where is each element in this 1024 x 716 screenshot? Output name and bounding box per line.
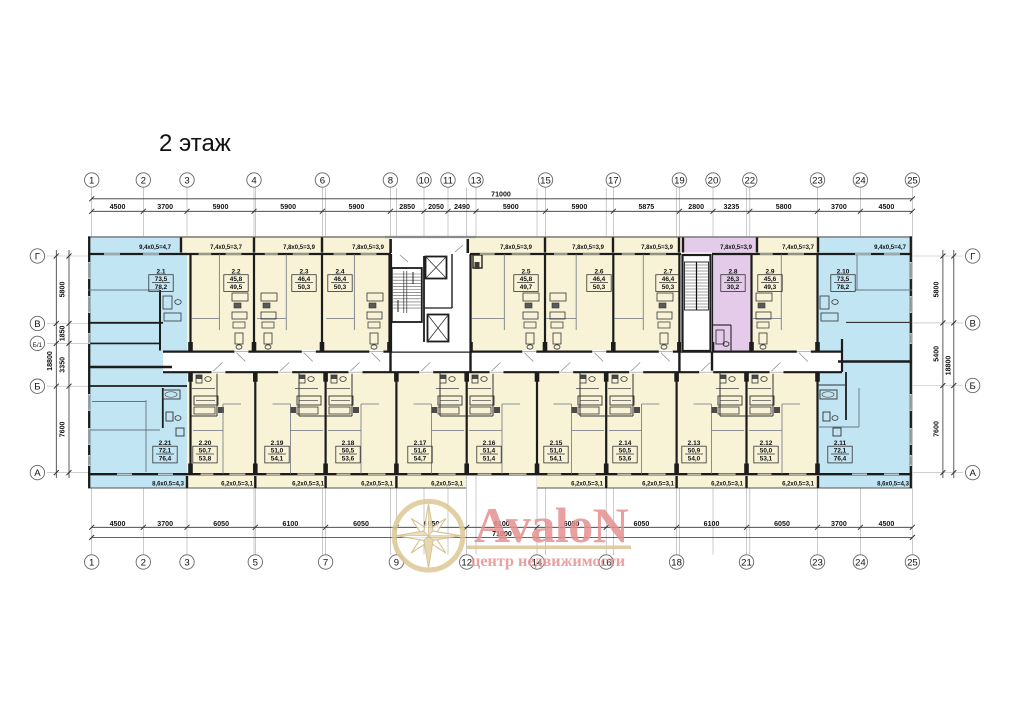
svg-text:4500: 4500 bbox=[110, 203, 126, 211]
svg-text:73,5: 73,5 bbox=[155, 276, 168, 283]
svg-text:2: 2 bbox=[141, 175, 146, 186]
svg-text:71000: 71000 bbox=[491, 191, 511, 199]
svg-text:7,4х0,5=3,7: 7,4х0,5=3,7 bbox=[210, 245, 243, 251]
svg-text:50,3: 50,3 bbox=[662, 284, 675, 291]
svg-text:54,1: 54,1 bbox=[271, 455, 284, 462]
svg-text:21: 21 bbox=[741, 557, 752, 568]
svg-text:17: 17 bbox=[608, 175, 619, 186]
svg-text:53,6: 53,6 bbox=[619, 455, 632, 462]
svg-text:2850: 2850 bbox=[399, 203, 415, 211]
svg-text:50,7: 50,7 bbox=[199, 448, 212, 455]
svg-text:22: 22 bbox=[744, 175, 755, 186]
svg-text:5875: 5875 bbox=[638, 203, 654, 211]
svg-text:4500: 4500 bbox=[110, 520, 126, 528]
svg-text:72,1: 72,1 bbox=[834, 448, 847, 455]
svg-text:2050: 2050 bbox=[428, 203, 444, 211]
svg-text:9: 9 bbox=[394, 557, 399, 568]
svg-text:6,2х0,5=3,1: 6,2х0,5=3,1 bbox=[431, 482, 464, 488]
svg-text:50,3: 50,3 bbox=[593, 284, 606, 291]
svg-text:5800: 5800 bbox=[776, 203, 792, 211]
svg-text:20: 20 bbox=[708, 175, 719, 186]
svg-text:50,3: 50,3 bbox=[298, 284, 311, 291]
svg-text:76,4: 76,4 bbox=[834, 455, 847, 462]
svg-text:46,4: 46,4 bbox=[334, 276, 347, 283]
svg-text:8,6х0,5=4,3: 8,6х0,5=4,3 bbox=[877, 482, 910, 488]
svg-text:49,7: 49,7 bbox=[520, 284, 533, 291]
svg-text:51,4: 51,4 bbox=[483, 455, 496, 462]
svg-text:4500: 4500 bbox=[879, 520, 895, 528]
svg-text:2: 2 bbox=[141, 557, 146, 568]
svg-text:7,4х0,5=3,7: 7,4х0,5=3,7 bbox=[782, 245, 815, 251]
svg-text:6100: 6100 bbox=[704, 520, 720, 528]
svg-text:3: 3 bbox=[184, 175, 189, 186]
svg-text:4: 4 bbox=[251, 175, 257, 186]
svg-text:5400: 5400 bbox=[933, 346, 941, 362]
svg-text:15: 15 bbox=[540, 175, 551, 186]
svg-text:Б: Б bbox=[34, 382, 40, 393]
svg-text:5: 5 bbox=[253, 557, 258, 568]
svg-text:7,8х0,5=3,9: 7,8х0,5=3,9 bbox=[500, 245, 533, 251]
svg-text:6050: 6050 bbox=[353, 520, 369, 528]
svg-text:8,6х0,5=4,3: 8,6х0,5=4,3 bbox=[152, 482, 185, 488]
svg-text:53,1: 53,1 bbox=[760, 455, 773, 462]
svg-text:7600: 7600 bbox=[933, 421, 941, 437]
svg-text:45,8: 45,8 bbox=[520, 276, 533, 283]
svg-text:54,0: 54,0 bbox=[688, 455, 701, 462]
svg-text:5900: 5900 bbox=[503, 203, 519, 211]
svg-text:8: 8 bbox=[388, 175, 393, 186]
svg-text:6,2х0,5=3,1: 6,2х0,5=3,1 bbox=[642, 482, 675, 488]
svg-text:Б/1: Б/1 bbox=[33, 342, 43, 349]
svg-text:3700: 3700 bbox=[157, 520, 173, 528]
svg-text:5800: 5800 bbox=[59, 282, 67, 298]
svg-text:23: 23 bbox=[812, 175, 823, 186]
svg-text:45,8: 45,8 bbox=[230, 276, 243, 283]
svg-text:В: В bbox=[34, 319, 40, 330]
svg-text:5800: 5800 bbox=[933, 282, 941, 298]
svg-text:6,2х0,5=3,1: 6,2х0,5=3,1 bbox=[571, 482, 604, 488]
svg-text:1: 1 bbox=[89, 175, 94, 186]
svg-text:А: А bbox=[969, 468, 976, 479]
svg-text:3350: 3350 bbox=[59, 357, 67, 373]
svg-text:Б: Б bbox=[970, 381, 976, 392]
svg-text:3700: 3700 bbox=[157, 203, 173, 211]
svg-text:6,2х0,5=3,1: 6,2х0,5=3,1 bbox=[221, 482, 254, 488]
svg-text:72,1: 72,1 bbox=[159, 448, 172, 455]
svg-text:центр недвижимости: центр недвижимости bbox=[471, 552, 625, 570]
svg-text:В: В bbox=[969, 318, 975, 329]
svg-text:25: 25 bbox=[907, 175, 918, 186]
svg-text:53,6: 53,6 bbox=[342, 455, 355, 462]
svg-text:24: 24 bbox=[855, 175, 866, 186]
svg-text:54,1: 54,1 bbox=[550, 455, 563, 462]
svg-text:46,4: 46,4 bbox=[593, 276, 606, 283]
svg-text:5900: 5900 bbox=[349, 203, 365, 211]
svg-text:49,3: 49,3 bbox=[764, 284, 777, 291]
svg-text:3700: 3700 bbox=[831, 203, 847, 211]
svg-text:1850: 1850 bbox=[59, 325, 67, 341]
svg-text:6050: 6050 bbox=[213, 520, 229, 528]
svg-text:6,2х0,5=3,1: 6,2х0,5=3,1 bbox=[361, 482, 394, 488]
svg-text:49,5: 49,5 bbox=[230, 284, 243, 291]
svg-text:10: 10 bbox=[419, 175, 430, 186]
svg-text:51,6: 51,6 bbox=[414, 448, 427, 455]
svg-text:78,2: 78,2 bbox=[837, 284, 850, 291]
svg-text:7,8х0,5=3,9: 7,8х0,5=3,9 bbox=[572, 245, 605, 251]
svg-text:51,4: 51,4 bbox=[483, 448, 496, 455]
svg-text:23: 23 bbox=[812, 557, 823, 568]
svg-text:19: 19 bbox=[674, 175, 685, 186]
svg-text:50,0: 50,0 bbox=[760, 448, 773, 455]
svg-text:3700: 3700 bbox=[831, 520, 847, 528]
svg-text:3235: 3235 bbox=[724, 203, 740, 211]
svg-text:18: 18 bbox=[671, 557, 682, 568]
svg-text:50,9: 50,9 bbox=[688, 448, 701, 455]
svg-text:51,0: 51,0 bbox=[271, 448, 284, 455]
svg-text:50,3: 50,3 bbox=[334, 284, 347, 291]
svg-text:7,8х0,5=3,9: 7,8х0,5=3,9 bbox=[641, 245, 674, 251]
svg-text:5900: 5900 bbox=[572, 203, 588, 211]
svg-text:6050: 6050 bbox=[774, 520, 790, 528]
svg-text:AvaloN: AvaloN bbox=[474, 497, 629, 553]
svg-text:50,5: 50,5 bbox=[342, 448, 355, 455]
svg-text:54,7: 54,7 bbox=[414, 455, 427, 462]
svg-text:46,4: 46,4 bbox=[298, 276, 311, 283]
svg-text:9,4х0,5=4,7: 9,4х0,5=4,7 bbox=[874, 245, 907, 251]
svg-text:53,8: 53,8 bbox=[199, 455, 212, 462]
svg-text:А: А bbox=[34, 468, 41, 479]
svg-text:9,4х0,5=4,7: 9,4х0,5=4,7 bbox=[139, 245, 172, 251]
svg-text:6: 6 bbox=[320, 175, 325, 186]
svg-text:50,5: 50,5 bbox=[619, 448, 632, 455]
svg-text:78,2: 78,2 bbox=[155, 284, 168, 291]
svg-text:73,5: 73,5 bbox=[837, 276, 850, 283]
svg-text:Г: Г bbox=[35, 251, 41, 262]
svg-text:18800: 18800 bbox=[46, 351, 54, 371]
svg-text:6,2х0,5=3,1: 6,2х0,5=3,1 bbox=[292, 482, 325, 488]
svg-text:6100: 6100 bbox=[283, 520, 299, 528]
svg-text:76,4: 76,4 bbox=[159, 455, 172, 462]
svg-text:6,2х0,5=3,1: 6,2х0,5=3,1 bbox=[782, 482, 815, 488]
svg-text:26,3: 26,3 bbox=[727, 276, 740, 283]
svg-text:5900: 5900 bbox=[280, 203, 296, 211]
svg-text:30,2: 30,2 bbox=[727, 284, 740, 291]
svg-text:2490: 2490 bbox=[454, 203, 470, 211]
svg-text:45,6: 45,6 bbox=[764, 276, 777, 283]
svg-text:5900: 5900 bbox=[213, 203, 229, 211]
svg-text:2800: 2800 bbox=[688, 203, 704, 211]
svg-text:Г: Г bbox=[970, 251, 976, 262]
svg-text:4500: 4500 bbox=[879, 203, 895, 211]
svg-text:24: 24 bbox=[855, 557, 866, 568]
svg-text:7,8х0,5=3,9: 7,8х0,5=3,9 bbox=[352, 245, 385, 251]
svg-text:2 этаж: 2 этаж bbox=[159, 130, 231, 157]
svg-text:51,0: 51,0 bbox=[550, 448, 563, 455]
svg-text:7,8х0,5=3,9: 7,8х0,5=3,9 bbox=[283, 245, 316, 251]
svg-text:11: 11 bbox=[443, 175, 453, 186]
svg-text:6,2х0,5=3,1: 6,2х0,5=3,1 bbox=[711, 482, 744, 488]
svg-text:6050: 6050 bbox=[634, 520, 650, 528]
svg-text:13: 13 bbox=[471, 175, 482, 186]
svg-text:3: 3 bbox=[184, 557, 189, 568]
svg-text:46,4: 46,4 bbox=[662, 276, 675, 283]
svg-text:7,8х0,5=3,9: 7,8х0,5=3,9 bbox=[720, 245, 753, 251]
svg-text:25: 25 bbox=[907, 557, 918, 568]
svg-text:7600: 7600 bbox=[59, 421, 67, 437]
svg-text:18800: 18800 bbox=[945, 356, 953, 376]
svg-text:1: 1 bbox=[89, 557, 94, 568]
svg-text:7: 7 bbox=[323, 557, 328, 568]
